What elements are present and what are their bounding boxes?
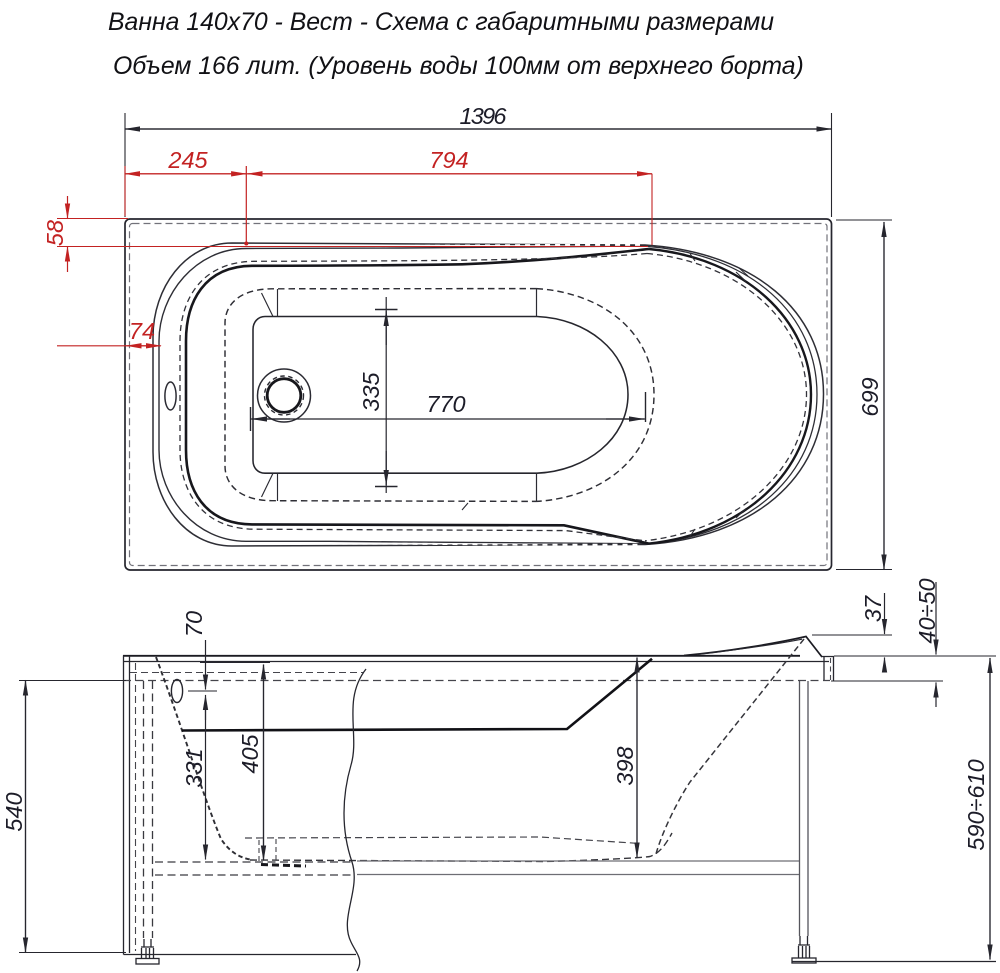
svg-text:331: 331 [181,748,207,787]
svg-text:590÷610: 590÷610 [963,759,989,850]
svg-text:540: 540 [1,792,27,831]
svg-text:74: 74 [129,318,155,344]
svg-text:770: 770 [426,391,465,417]
svg-text:245: 245 [167,147,208,173]
svg-text:699: 699 [857,377,883,416]
svg-text:794: 794 [429,147,468,173]
svg-text:398: 398 [612,746,638,785]
svg-text:70: 70 [181,611,207,637]
svg-text:37: 37 [860,595,886,622]
svg-text:335: 335 [358,371,384,411]
svg-text:405: 405 [237,733,263,773]
svg-text:Ванна 140х70 - Вест - Схема с: Ванна 140х70 - Вест - Схема с габаритным… [108,9,774,36]
svg-text:Объем 166 лит. (Уровень воды 1: Объем 166 лит. (Уровень воды 100мм от ве… [113,53,804,80]
svg-text:40÷50: 40÷50 [914,578,940,643]
svg-text:58: 58 [42,220,68,246]
svg-text:1396: 1396 [460,103,508,129]
